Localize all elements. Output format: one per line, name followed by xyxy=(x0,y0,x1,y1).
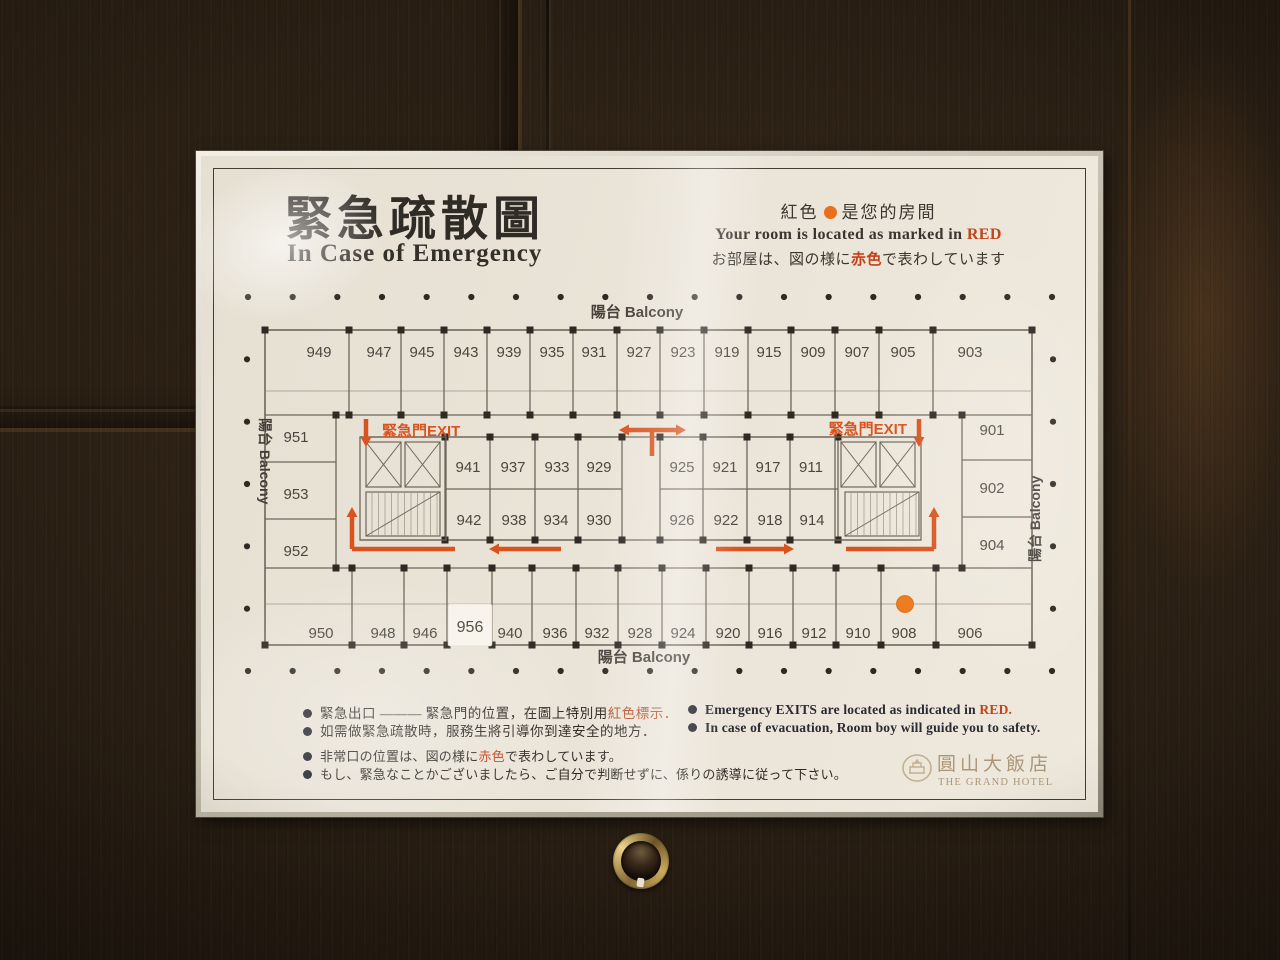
column-marker xyxy=(788,412,795,419)
room-number: 926 xyxy=(669,512,694,529)
bullet-icon xyxy=(303,709,312,718)
column-marker xyxy=(744,537,751,544)
balcony-label: 陽台 Balcony xyxy=(257,418,273,505)
room-number: 952 xyxy=(283,543,308,560)
legend-line-zh-1: 緊急出口 ——— 緊急門的位置，在圖上特別用紅色標示． xyxy=(303,702,678,722)
room-number: 911 xyxy=(799,459,823,476)
legend-en2-text: In case of evacuation, Room boy will gui… xyxy=(705,720,1040,735)
balcony-column-dot xyxy=(468,294,474,300)
legend-line-en-1: Emergency EXITS are located as indicated… xyxy=(688,702,1012,718)
emergency-evacuation-sign: 緊急疏散圖 In Case of Emergency 紅色是您的房間 Your … xyxy=(196,151,1103,817)
room-number: 947 xyxy=(366,344,391,361)
balcony-column-dot xyxy=(290,294,296,300)
column-marker xyxy=(573,565,580,572)
exit-label: 緊急門EXIT xyxy=(382,422,460,440)
grand-hotel-emblem xyxy=(901,751,933,785)
column-marker xyxy=(262,327,269,334)
column-marker xyxy=(346,412,353,419)
column-marker xyxy=(930,412,937,419)
column-marker xyxy=(959,565,966,572)
balcony-column-dot xyxy=(826,668,832,674)
room-number: 916 xyxy=(757,625,782,642)
balcony-column-dot xyxy=(1050,481,1056,487)
bullet-icon xyxy=(303,770,312,779)
legend-line-en-2: In case of evacuation, Room boy will gui… xyxy=(688,720,1040,736)
column-marker xyxy=(787,537,794,544)
balcony-column-dot xyxy=(781,668,787,674)
column-marker xyxy=(401,642,408,649)
balcony-column-dot xyxy=(245,668,251,674)
legend-jp1-post: で表わしています。 xyxy=(505,749,622,764)
column-marker xyxy=(878,565,885,572)
balcony-column-dot xyxy=(960,294,966,300)
column-marker xyxy=(703,565,710,572)
column-marker xyxy=(930,327,937,334)
room-number: 914 xyxy=(799,512,824,529)
column-marker xyxy=(527,327,534,334)
balcony-column-dot xyxy=(379,668,385,674)
column-marker xyxy=(484,412,491,419)
column-marker xyxy=(1029,642,1036,649)
room-number: 950 xyxy=(308,625,333,642)
column-marker xyxy=(703,642,710,649)
arrow-head xyxy=(489,544,499,555)
column-marker xyxy=(615,565,622,572)
bullet-icon xyxy=(688,705,697,714)
room-number: 929 xyxy=(586,459,611,476)
balcony-column-dot xyxy=(513,294,519,300)
column-marker xyxy=(619,537,626,544)
room-number: 948 xyxy=(370,625,395,642)
column-marker xyxy=(657,412,664,419)
column-marker xyxy=(349,642,356,649)
logo-text-en: THE GRAND HOTEL xyxy=(938,777,1086,788)
room-number: 921 xyxy=(712,459,737,476)
column-marker xyxy=(832,327,839,334)
column-marker xyxy=(657,434,664,441)
balcony-label: 陽台 Balcony xyxy=(591,303,684,321)
balcony-column-dot xyxy=(424,668,430,674)
column-marker xyxy=(349,565,356,572)
legend-en1-text: Emergency EXITS are located as indicated… xyxy=(705,702,976,717)
room-number: 928 xyxy=(627,625,652,642)
bullet-icon xyxy=(303,727,312,736)
column-marker xyxy=(487,434,494,441)
room-number: 904 xyxy=(979,537,1004,554)
column-marker xyxy=(575,434,582,441)
arrow-head xyxy=(929,507,940,517)
column-marker xyxy=(529,642,536,649)
room-number: 949 xyxy=(306,344,331,361)
column-marker xyxy=(570,412,577,419)
column-marker xyxy=(444,565,451,572)
column-marker xyxy=(489,565,496,572)
column-marker xyxy=(333,565,340,572)
column-marker xyxy=(876,327,883,334)
room-number: 909 xyxy=(800,344,825,361)
balcony-column-dot xyxy=(244,543,250,549)
exit-label: 緊急門EXIT xyxy=(829,420,907,438)
balcony-column-dot xyxy=(692,294,698,300)
column-marker xyxy=(615,642,622,649)
column-marker xyxy=(746,642,753,649)
room-number: 903 xyxy=(957,344,982,361)
balcony-column-dot xyxy=(334,294,340,300)
column-marker xyxy=(657,327,664,334)
room-number: 924 xyxy=(670,625,695,642)
arrow-head xyxy=(676,425,686,436)
column-marker xyxy=(790,565,797,572)
balcony-column-dot xyxy=(468,668,474,674)
room-number: 915 xyxy=(756,344,781,361)
room-number: 919 xyxy=(714,344,739,361)
legend-line-zh-2: 如需做緊急疏散時，服務生將引導你到達安全的地方． xyxy=(303,720,656,740)
legend-jp1-accent: 赤色 xyxy=(478,749,504,764)
peephole-notch xyxy=(636,878,644,888)
column-marker xyxy=(933,565,940,572)
balcony-label: 陽台 Balcony xyxy=(598,648,691,666)
column-marker xyxy=(878,642,885,649)
arrow-head xyxy=(347,507,358,517)
room-number: 940 xyxy=(497,625,522,642)
column-marker xyxy=(614,412,621,419)
balcony-column-dot xyxy=(960,668,966,674)
column-marker xyxy=(746,565,753,572)
balcony-label: 陽台 Balcony xyxy=(1027,475,1043,562)
column-marker xyxy=(700,537,707,544)
room-number: 943 xyxy=(453,344,478,361)
column-marker xyxy=(527,412,534,419)
room-number: 906 xyxy=(957,625,982,642)
column-marker xyxy=(657,537,664,544)
balcony-column-dot xyxy=(244,481,250,487)
column-marker xyxy=(876,412,883,419)
room-number: 933 xyxy=(544,459,569,476)
balcony-column-dot xyxy=(826,294,832,300)
room-number: 927 xyxy=(626,344,651,361)
legend-zh1-text: 緊急出口 ——— 緊急門的位置，在圖上特別用 xyxy=(320,706,608,721)
room-number: 941 xyxy=(455,459,480,476)
room-number: 937 xyxy=(500,459,525,476)
column-marker xyxy=(933,642,940,649)
balcony-column-dot xyxy=(736,294,742,300)
balcony-column-dot xyxy=(1050,356,1056,362)
column-marker xyxy=(262,642,269,649)
balcony-column-dot xyxy=(244,419,250,425)
balcony-column-dot xyxy=(1004,668,1010,674)
column-marker xyxy=(441,327,448,334)
balcony-column-dot xyxy=(290,668,296,674)
room-number: 905 xyxy=(890,344,915,361)
room-number: 910 xyxy=(845,625,870,642)
room-number: 907 xyxy=(844,344,869,361)
legend-en1-accent: RED. xyxy=(979,702,1012,717)
balcony-column-dot xyxy=(692,668,698,674)
room-number: 945 xyxy=(409,344,434,361)
balcony-column-dot xyxy=(915,668,921,674)
light-reflection xyxy=(1108,50,1280,590)
balcony-column-dot xyxy=(602,668,608,674)
peephole-lens xyxy=(621,841,661,881)
column-marker xyxy=(333,412,340,419)
balcony-column-dot xyxy=(1050,543,1056,549)
column-marker xyxy=(701,412,708,419)
column-marker xyxy=(745,412,752,419)
column-marker xyxy=(529,565,536,572)
balcony-column-dot xyxy=(379,294,385,300)
room-number: 951 xyxy=(283,429,308,446)
room-number: 946 xyxy=(412,625,437,642)
legend-zh2-text: 如需做緊急疏散時，服務生將引導你到達安全的地方． xyxy=(320,724,656,739)
room-number: 902 xyxy=(979,480,1004,497)
balcony-column-dot xyxy=(1050,606,1056,612)
room-number: 932 xyxy=(584,625,609,642)
column-marker xyxy=(532,434,539,441)
column-marker xyxy=(484,327,491,334)
room-number: 901 xyxy=(979,422,1004,439)
column-marker xyxy=(573,642,580,649)
column-marker xyxy=(487,537,494,544)
room-number: 912 xyxy=(801,625,826,642)
column-marker xyxy=(1029,327,1036,334)
door-seam xyxy=(546,0,549,154)
room-number: 925 xyxy=(669,459,694,476)
column-marker xyxy=(619,434,626,441)
balcony-column-dot xyxy=(1049,294,1055,300)
grand-hotel-logo: 圓山大飯店 THE GRAND HOTEL xyxy=(901,749,1086,788)
room-number: 918 xyxy=(757,512,782,529)
balcony-column-dot xyxy=(244,606,250,612)
balcony-column-dot xyxy=(424,294,430,300)
legend-jp2-text: もし、緊急なことかございましたら、ご自分で判断せずに、係りの誘導に従って下さい。 xyxy=(320,767,847,782)
bullet-icon xyxy=(688,723,697,732)
room-number: 953 xyxy=(283,486,308,503)
bullet-icon xyxy=(303,752,312,761)
balcony-column-dot xyxy=(781,294,787,300)
balcony-column-dot xyxy=(244,356,250,362)
your-room-marker xyxy=(897,596,914,613)
door-seam xyxy=(1128,0,1131,960)
balcony-column-dot xyxy=(513,668,519,674)
column-marker xyxy=(532,537,539,544)
column-marker xyxy=(700,434,707,441)
legend-line-jp-1: 非常口の位置は、図の様に赤色で表わしています。 xyxy=(303,746,622,765)
room-number: 938 xyxy=(501,512,526,529)
column-marker xyxy=(744,434,751,441)
balcony-column-dot xyxy=(334,668,340,674)
sign-paper: 緊急疏散圖 In Case of Emergency 紅色是您的房間 Your … xyxy=(201,156,1098,812)
balcony-column-dot xyxy=(736,668,742,674)
room-number: 939 xyxy=(496,344,521,361)
room-number: 930 xyxy=(586,512,611,529)
room-number: 936 xyxy=(542,625,567,642)
balcony-column-dot xyxy=(245,294,251,300)
column-marker xyxy=(614,327,621,334)
column-marker xyxy=(832,412,839,419)
room-number: 908 xyxy=(891,625,916,642)
balcony-column-dot xyxy=(602,294,608,300)
room-number: 956 xyxy=(457,619,484,636)
room-number: 935 xyxy=(539,344,564,361)
column-marker xyxy=(346,327,353,334)
column-marker xyxy=(659,565,666,572)
balcony-column-dot xyxy=(1049,668,1055,674)
column-marker xyxy=(401,565,408,572)
column-marker xyxy=(441,412,448,419)
column-marker xyxy=(570,327,577,334)
room-number: 923 xyxy=(670,344,695,361)
legend-zh1-accent: 紅色標示． xyxy=(608,706,678,721)
balcony-column-dot xyxy=(915,294,921,300)
balcony-column-dot xyxy=(647,294,653,300)
column-marker xyxy=(745,327,752,334)
balcony-column-dot xyxy=(870,668,876,674)
legend-jp1-text: 非常口の位置は、図の様に xyxy=(320,749,478,764)
column-marker xyxy=(398,412,405,419)
column-marker xyxy=(833,565,840,572)
balcony-column-dot xyxy=(870,294,876,300)
balcony-column-dot xyxy=(558,294,564,300)
logo-text-zh: 圓山大飯店 xyxy=(937,749,1086,776)
column-marker xyxy=(788,327,795,334)
balcony-column-dot xyxy=(1050,419,1056,425)
column-marker xyxy=(787,434,794,441)
column-marker xyxy=(833,642,840,649)
room-number: 931 xyxy=(581,344,606,361)
column-marker xyxy=(398,327,405,334)
balcony-column-dot xyxy=(647,668,653,674)
room-number: 920 xyxy=(715,625,740,642)
balcony-column-dot xyxy=(1004,294,1010,300)
arrow-head xyxy=(784,544,794,555)
column-marker xyxy=(959,412,966,419)
door-photo: 緊急疏散圖 In Case of Emergency 紅色是您的房間 Your … xyxy=(0,0,1280,960)
column-marker xyxy=(790,642,797,649)
balcony-column-dot xyxy=(558,668,564,674)
column-marker xyxy=(701,327,708,334)
legend-line-jp-2: もし、緊急なことかございましたら、ご自分で判断せずに、係りの誘導に従って下さい。 xyxy=(303,764,847,783)
room-number: 934 xyxy=(543,512,568,529)
column-marker xyxy=(575,537,582,544)
room-number: 922 xyxy=(713,512,738,529)
column-marker xyxy=(659,642,666,649)
room-number: 917 xyxy=(755,459,780,476)
room-number: 942 xyxy=(456,512,481,529)
